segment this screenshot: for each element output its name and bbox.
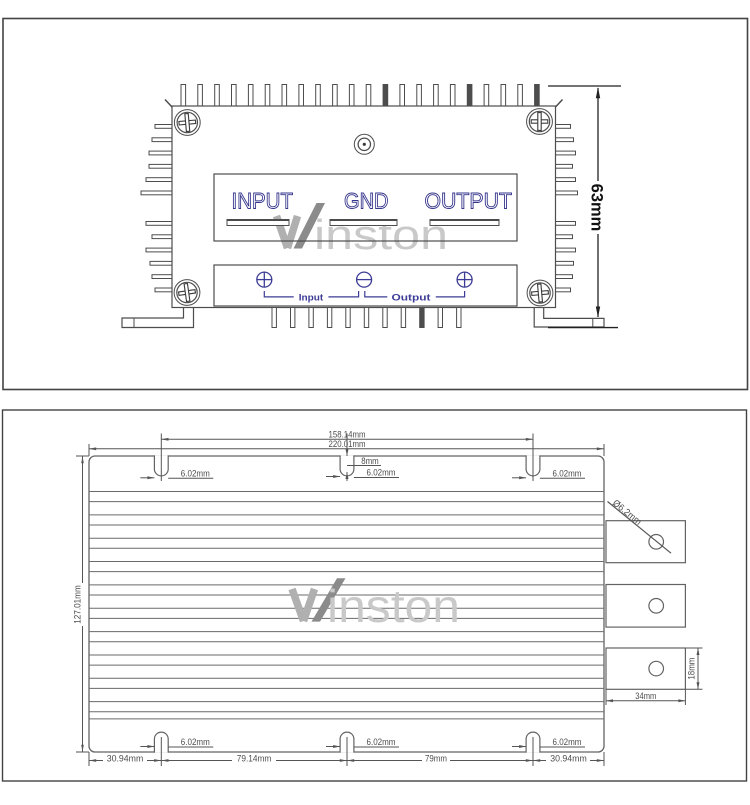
svg-text:6.02mm: 6.02mm bbox=[553, 737, 582, 748]
svg-text:6.02mm: 6.02mm bbox=[367, 737, 396, 748]
svg-text:79mm: 79mm bbox=[425, 754, 447, 765]
svg-text:8mm: 8mm bbox=[361, 456, 379, 467]
svg-text:Input: Input bbox=[299, 292, 324, 303]
svg-text:30.94mm: 30.94mm bbox=[550, 754, 587, 765]
svg-text:inston: inston bbox=[327, 580, 460, 632]
svg-text:Output: Output bbox=[392, 292, 432, 303]
svg-text:63mm: 63mm bbox=[588, 184, 606, 232]
svg-text:127.01mm: 127.01mm bbox=[73, 585, 84, 624]
svg-text:30.94mm: 30.94mm bbox=[107, 754, 144, 765]
svg-text:INPUT: INPUT bbox=[232, 189, 294, 214]
svg-text:18mm: 18mm bbox=[687, 658, 698, 680]
svg-text:34mm: 34mm bbox=[635, 691, 656, 702]
svg-text:6.02mm: 6.02mm bbox=[553, 468, 582, 479]
svg-text:6.02mm: 6.02mm bbox=[181, 468, 210, 479]
svg-text:6.02mm: 6.02mm bbox=[367, 468, 396, 479]
svg-text:6.02mm: 6.02mm bbox=[181, 737, 210, 748]
svg-text:inston: inston bbox=[314, 211, 448, 258]
svg-text:OUTPUT: OUTPUT bbox=[425, 189, 513, 214]
svg-text:79.14mm: 79.14mm bbox=[237, 754, 272, 765]
svg-text:GND: GND bbox=[344, 189, 389, 214]
